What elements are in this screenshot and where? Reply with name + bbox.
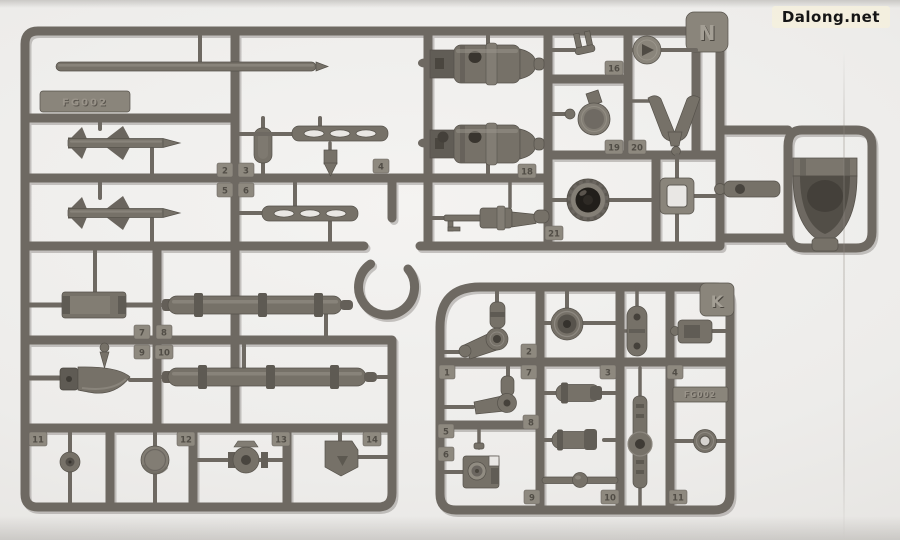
svg-text:6: 6: [243, 187, 249, 197]
part-bullet: [324, 143, 337, 176]
part-number-tag: 18: [518, 164, 536, 178]
part-ball-rod: [542, 473, 618, 488]
part-engine-pod-1: [418, 31, 544, 85]
svg-text:7: 7: [139, 329, 145, 339]
part-missile-2: [68, 178, 180, 246]
part-hub-wheel: [60, 428, 80, 507]
part-number-tag: 9: [134, 345, 150, 359]
svg-text:9: 9: [139, 349, 145, 359]
part-connector-box: [670, 320, 730, 343]
part-number-tag: 21: [545, 226, 563, 240]
sprue-n-letter-tab: N N: [686, 12, 728, 52]
svg-text:1: 1: [444, 369, 450, 379]
svg-text:FG002: FG002: [684, 390, 716, 399]
svg-text:3: 3: [243, 167, 249, 177]
svg-text:6: 6: [443, 451, 449, 461]
sprue-n-code-tab: FG002 FG002: [40, 91, 130, 112]
svg-text:21: 21: [548, 230, 560, 240]
sprue-k: K K FG002 FG002: [438, 283, 734, 515]
part-number-tag: 5: [217, 183, 233, 197]
svg-text:K: K: [711, 292, 724, 311]
svg-text:16: 16: [608, 65, 620, 75]
svg-text:9: 9: [529, 494, 535, 504]
svg-text:19: 19: [608, 144, 620, 154]
svg-text:N: N: [699, 21, 716, 45]
svg-text:5: 5: [443, 428, 449, 438]
part-number-tag: 6: [238, 183, 254, 197]
part-number-tag: 10: [601, 490, 619, 504]
part-linkage-arm: [628, 368, 652, 510]
part-number-tag: 7: [521, 365, 537, 379]
sprue-k-code-tab: FG002 FG002: [673, 387, 728, 402]
part-number-tag: 14: [363, 432, 381, 446]
part-saddle-collar: [793, 158, 857, 251]
part-number-tag: 8: [523, 415, 539, 429]
part-paddle: [254, 118, 272, 178]
svg-text:3: 3: [605, 369, 611, 379]
part-number-tag: 11: [29, 432, 47, 446]
part-number-tag: 4: [373, 159, 389, 173]
svg-text:11: 11: [672, 494, 684, 504]
svg-text:12: 12: [180, 436, 192, 446]
part-number-tag: 3: [600, 365, 616, 379]
watermark: Dalong.net: [772, 6, 890, 28]
part-number-tag: 2: [217, 163, 233, 177]
svg-text:8: 8: [161, 329, 167, 339]
part-banded-cylinder-2: [540, 429, 620, 451]
part-ribbed-barrel-2: [157, 340, 392, 389]
part-square-frame: [656, 155, 720, 246]
part-capped-disc: [548, 90, 610, 135]
photo: N N FG002 FG002: [0, 0, 900, 540]
part-number-tag: 20: [628, 140, 646, 154]
part-number-tag: 9: [524, 490, 540, 504]
part-number-tag: 7: [134, 325, 150, 339]
part-number-tag: 10: [155, 345, 173, 359]
svg-text:11: 11: [32, 436, 44, 446]
svg-text:10: 10: [158, 349, 170, 359]
part-donut: [670, 430, 730, 453]
part-number-tag: 13: [272, 432, 290, 446]
photo-bottom-shade: [0, 516, 900, 540]
backdrop-seam: [843, 50, 845, 540]
part-missile-1: [68, 118, 180, 178]
part-ring-washer: [540, 287, 620, 340]
part-ammo-magazine: [30, 246, 157, 318]
part-number-tag: 11: [669, 490, 687, 504]
svg-text:4: 4: [378, 163, 384, 173]
sprue-scene: N N FG002 FG002: [0, 0, 900, 540]
part-dark-lens: [548, 179, 656, 221]
svg-text:13: 13: [275, 436, 287, 446]
part-round-disc: [141, 428, 169, 507]
part-number-tag: 5: [438, 424, 454, 438]
part-scoped-rifle: [428, 178, 549, 231]
part-number-tag: 16: [605, 61, 623, 75]
part-angled-bracket: [325, 428, 392, 476]
svg-text:10: 10: [604, 494, 616, 504]
svg-text:8: 8: [528, 419, 534, 429]
svg-text:7: 7: [526, 369, 532, 379]
part-number-tag: 8: [156, 325, 172, 339]
part-number-tag: 6: [438, 447, 454, 461]
svg-text:4: 4: [672, 369, 678, 379]
svg-text:20: 20: [631, 144, 643, 154]
sprue-k-letter-tab: K K: [700, 283, 734, 316]
part-number-tag: 2: [521, 344, 537, 358]
svg-text:5: 5: [222, 187, 228, 197]
part-number-tag: 19: [605, 140, 623, 154]
svg-text:14: 14: [366, 436, 378, 446]
part-banded-cylinder-1: [540, 383, 620, 404]
part-number-tag: 1: [439, 365, 455, 379]
part-number-tag: 4: [667, 365, 683, 379]
sprue-gate: [485, 506, 499, 515]
part-number-tag: 12: [177, 432, 195, 446]
svg-text:2: 2: [526, 348, 532, 358]
svg-text:18: 18: [521, 168, 533, 178]
svg-text:2: 2: [222, 167, 228, 177]
part-number-tag: 3: [238, 163, 254, 177]
svg-text:FG002: FG002: [62, 98, 108, 109]
part-ribbed-barrel-1: [157, 293, 353, 340]
